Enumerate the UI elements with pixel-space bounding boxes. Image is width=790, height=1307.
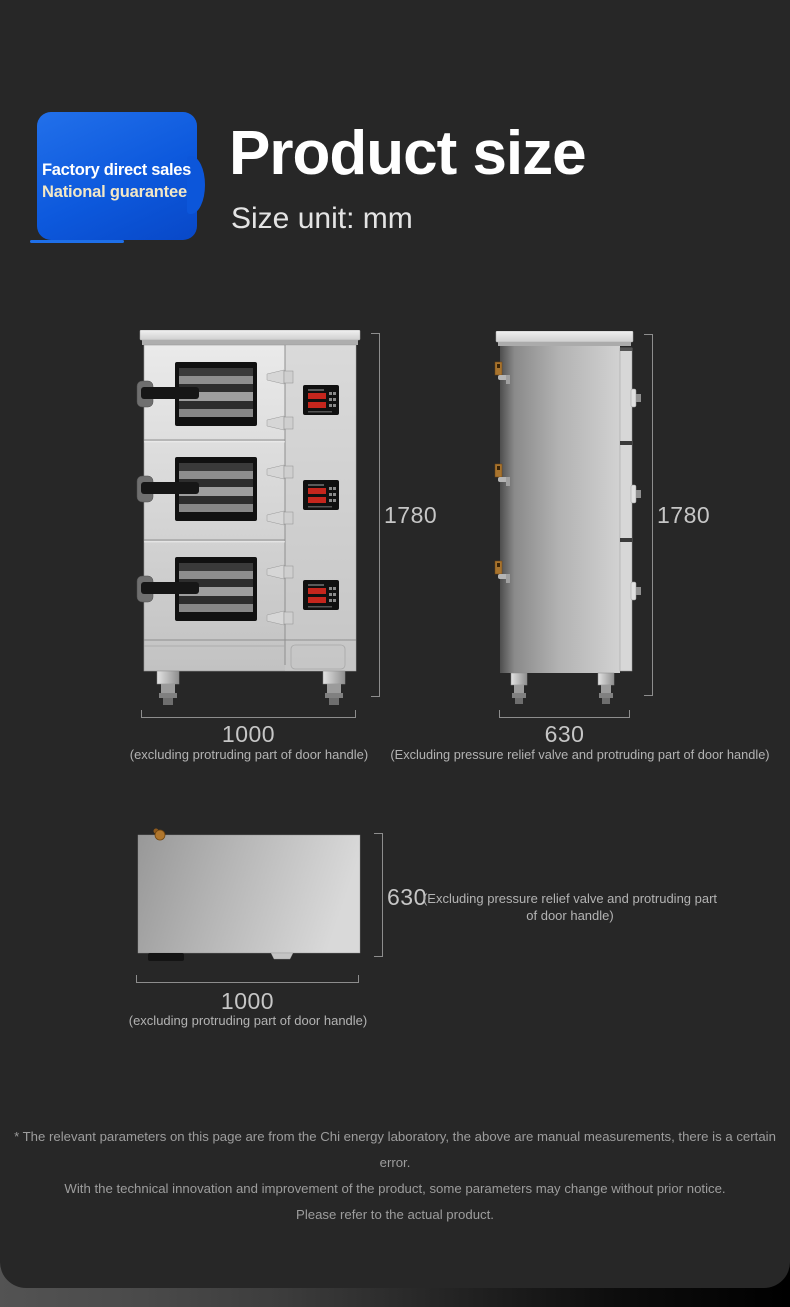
cabinet-top-cap xyxy=(496,331,633,346)
control-panel-display xyxy=(303,580,339,610)
badge-underline-bar xyxy=(30,240,124,243)
cabinet-leg xyxy=(598,673,614,704)
front-width-label: 1000 xyxy=(141,721,356,748)
top-width-bracket xyxy=(136,975,359,983)
cabinet-top-cap xyxy=(140,330,360,345)
front-height-label: 1780 xyxy=(384,502,437,529)
door-hinge xyxy=(631,582,641,600)
door-edge-strip xyxy=(620,348,632,671)
disclaimer-block: * The relevant parameters on this page a… xyxy=(0,1124,790,1228)
side-panel xyxy=(500,346,620,673)
front-width-bracket xyxy=(141,710,356,718)
cabinet-leg xyxy=(157,671,179,705)
door-hinge xyxy=(271,953,293,959)
promo-badge: Factory direct sales National guarantee xyxy=(37,112,197,240)
cabinet-leg xyxy=(323,671,345,705)
top-view-image xyxy=(132,827,364,967)
content-card: Factory direct sales National guarantee … xyxy=(0,0,790,1288)
front-width-caption: (excluding protruding part of door handl… xyxy=(104,746,394,763)
badge-line2: National guarantee xyxy=(42,181,193,203)
control-panel-display xyxy=(303,480,339,510)
front-view-image xyxy=(133,330,361,706)
top-depth-bracket xyxy=(374,833,383,957)
door-handle xyxy=(148,953,184,961)
side-height-bracket xyxy=(644,334,653,696)
side-depth-bracket xyxy=(499,710,630,718)
control-panel-display xyxy=(303,385,339,415)
side-depth-label: 630 xyxy=(499,721,630,748)
disclaimer-line-1: * The relevant parameters on this page a… xyxy=(0,1124,790,1176)
disclaimer-line-3: Please refer to the actual product. xyxy=(0,1202,790,1228)
disclaimer-line-2: With the technical innovation and improv… xyxy=(0,1176,790,1202)
top-depth-caption: (Excluding pressure relief valve and pro… xyxy=(420,890,720,924)
front-height-bracket xyxy=(371,333,380,697)
cabinet-top-panel xyxy=(138,835,360,953)
cabinet-leg xyxy=(511,673,527,704)
door-hinge xyxy=(631,485,641,503)
page-canvas: Factory direct sales National guarantee … xyxy=(0,0,790,1307)
side-height-label: 1780 xyxy=(657,502,710,529)
top-width-label: 1000 xyxy=(136,988,359,1015)
door-hinge xyxy=(631,389,641,407)
page-title: Product size xyxy=(229,114,586,194)
side-depth-caption: (Excluding pressure relief valve and pro… xyxy=(374,746,786,763)
side-view-image xyxy=(494,331,641,705)
top-width-caption: (excluding protruding part of door handl… xyxy=(103,1012,393,1029)
page-subtitle: Size unit: mm xyxy=(231,202,413,236)
badge-line1: Factory direct sales xyxy=(42,159,193,181)
